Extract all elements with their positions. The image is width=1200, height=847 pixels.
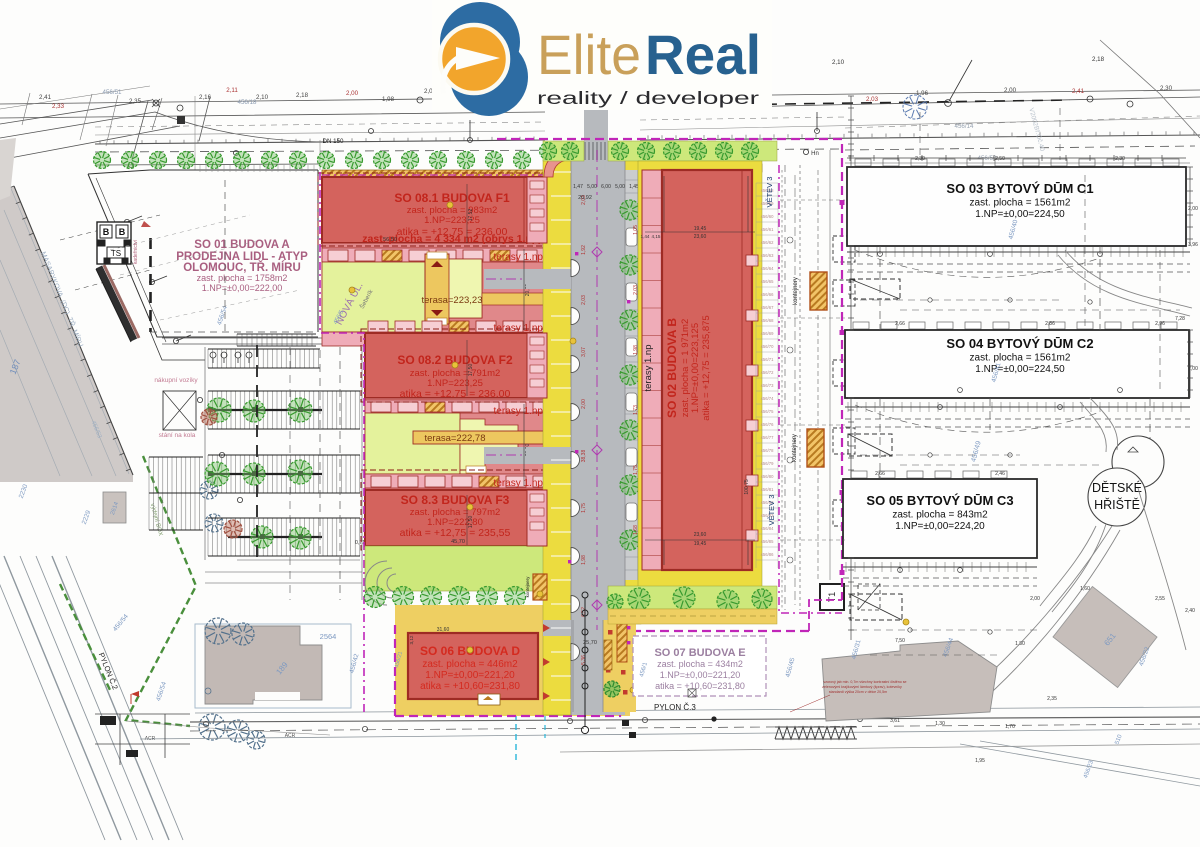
svg-text:1,60: 1,60 (1080, 586, 1090, 592)
svg-text:1,45: 1,45 (629, 184, 639, 190)
svg-text:5,00: 5,00 (615, 184, 625, 190)
svg-text:19,45: 19,45 (694, 226, 707, 232)
svg-text:5,00: 5,00 (587, 184, 597, 190)
svg-text:1.NP=±0,00=222,00: 1.NP=±0,00=222,00 (202, 283, 283, 293)
svg-text:23,60: 23,60 (694, 532, 707, 538)
svg-text:456/75: 456/75 (761, 409, 774, 414)
svg-text:456/69: 456/69 (761, 331, 774, 336)
svg-text:2,41: 2,41 (39, 94, 52, 101)
svg-text:20,92: 20,92 (578, 195, 592, 201)
svg-text:DN 150: DN 150 (323, 138, 345, 145)
svg-text:2,03: 2,03 (866, 96, 879, 103)
svg-text:3,96: 3,96 (1188, 242, 1198, 248)
svg-text:456/61: 456/61 (761, 227, 774, 232)
svg-text:1.NP=±0,00=224,50: 1.NP=±0,00=224,50 (975, 209, 1065, 220)
svg-text:Elite: Elite (537, 23, 641, 86)
svg-text:56,50: 56,50 (383, 237, 397, 243)
svg-text:456/62: 456/62 (761, 240, 774, 245)
svg-text:2,30: 2,30 (1160, 85, 1173, 92)
svg-text:456/68: 456/68 (761, 318, 774, 323)
svg-text:456/72: 456/72 (761, 370, 774, 375)
svg-text:2,40: 2,40 (1185, 608, 1195, 614)
svg-text:1,70: 1,70 (1005, 724, 1015, 730)
svg-text:456/67: 456/67 (761, 305, 774, 310)
svg-text:456/86: 456/86 (761, 552, 774, 557)
svg-text:B: B (119, 227, 126, 237)
svg-text:2,55: 2,55 (1155, 596, 1165, 602)
svg-text:25,70: 25,70 (583, 640, 597, 646)
svg-text:2,00: 2,00 (1188, 206, 1198, 212)
svg-text:17,50: 17,50 (468, 516, 474, 529)
svg-text:SO 01 BUDOVA A: SO 01 BUDOVA A (194, 239, 289, 251)
svg-text:456/79: 456/79 (761, 461, 774, 466)
svg-text:terasy 1.np: terasy 1.np (494, 406, 544, 417)
svg-text:1,44: 1,44 (641, 234, 650, 239)
svg-text:2,00: 2,00 (1030, 596, 1040, 602)
svg-text:2,18: 2,18 (1092, 56, 1105, 63)
svg-text:7,50: 7,50 (895, 638, 905, 644)
svg-text:1,96: 1,96 (916, 90, 929, 97)
svg-text:17,52: 17,52 (468, 209, 474, 222)
svg-text:1,98: 1,98 (382, 96, 395, 103)
svg-text:2,35: 2,35 (129, 98, 142, 105)
svg-text:1,47: 1,47 (573, 184, 583, 190)
svg-text:nákupní vozíky: nákupní vozíky (154, 377, 198, 384)
svg-text:2,33: 2,33 (52, 103, 65, 110)
svg-text:2,41: 2,41 (1072, 88, 1085, 95)
svg-text:terasy 1.np: terasy 1.np (494, 252, 544, 263)
svg-text:456/74: 456/74 (761, 396, 774, 401)
svg-text:456/60: 456/60 (761, 214, 774, 219)
svg-text:2,00: 2,00 (1004, 87, 1017, 94)
svg-text:PYLON Č.3: PYLON Č.3 (654, 703, 696, 712)
svg-text:terasa=222,78: terasa=222,78 (424, 433, 485, 444)
svg-text:2,35: 2,35 (1047, 696, 1057, 702)
svg-text:terasy 1.np: terasy 1.np (494, 478, 544, 489)
svg-text:Hn: Hn (811, 151, 819, 157)
svg-text:2,66: 2,66 (875, 471, 885, 477)
svg-text:atika = +12,75 = 235,875: atika = +12,75 = 235,875 (701, 315, 712, 420)
svg-text:456/78: 456/78 (761, 448, 774, 453)
svg-text:SO 04 BYTOVÝ DŪM C2: SO 04 BYTOVÝ DŪM C2 (946, 336, 1093, 351)
svg-text:VĚTEV 3: VĚTEV 3 (765, 177, 774, 208)
svg-text:456/71: 456/71 (761, 357, 774, 362)
svg-text:31,60: 31,60 (437, 627, 450, 633)
svg-text:Real: Real (645, 23, 761, 86)
svg-text:SO 03 BYTOVÝ DŪM C1: SO 03 BYTOVÝ DŪM C1 (946, 181, 1093, 196)
svg-text:reality / developer: reality / developer (537, 88, 759, 108)
svg-text:2564: 2564 (320, 632, 337, 641)
svg-text:VĚTEV 3: VĚTEV 3 (767, 495, 776, 526)
svg-text:456/65: 456/65 (761, 279, 774, 284)
svg-text:1.NP=±0,00=223,125: 1.NP=±0,00=223,125 (690, 323, 701, 413)
svg-text:17,50: 17,50 (468, 364, 474, 377)
svg-text:atika = +10,60=231,80: atika = +10,60=231,80 (420, 681, 520, 692)
svg-text:zelenovými krajíkovými lámtový: zelenovými krajíkovými lámtový (šprav), … (822, 685, 902, 689)
svg-text:DĚTSKÉ: DĚTSKÉ (1092, 480, 1142, 495)
svg-text:456/81: 456/81 (761, 487, 774, 492)
svg-text:456/14: 456/14 (955, 123, 974, 130)
svg-text:456/63: 456/63 (761, 253, 774, 258)
svg-text:2,00: 2,00 (1188, 366, 1198, 372)
svg-text:zast. plocha = 434m2: zast. plocha = 434m2 (657, 659, 743, 669)
svg-text:1,30: 1,30 (935, 721, 945, 727)
svg-text:atika = +10,60=231,80: atika = +10,60=231,80 (655, 681, 745, 691)
svg-text:456/76: 456/76 (761, 422, 774, 427)
svg-text:zast. plocha = 843m2: zast. plocha = 843m2 (892, 510, 988, 521)
svg-text:3,07: 3,07 (581, 347, 587, 357)
svg-text:terasa=223,23: terasa=223,23 (421, 295, 482, 306)
svg-text:zast. plocha = 1758m2: zast. plocha = 1758m2 (197, 273, 288, 283)
svg-text:456/77: 456/77 (761, 435, 774, 440)
svg-text:100,75: 100,75 (744, 479, 750, 495)
svg-text:456/51: 456/51 (103, 89, 122, 96)
svg-text:1.NP=±0,00=224,50: 1.NP=±0,00=224,50 (975, 364, 1065, 375)
svg-text:ACR: ACR (285, 733, 296, 739)
svg-text:SO 07 BUDOVA E: SO 07 BUDOVA E (654, 647, 745, 659)
svg-text:vzorový jab min. 0,7m všechny: vzorový jab min. 0,7m všechny kontrastní… (823, 680, 906, 684)
svg-text:4,15: 4,15 (652, 234, 661, 239)
svg-text:1,75: 1,75 (581, 503, 587, 513)
svg-text:2,10: 2,10 (256, 94, 269, 101)
svg-text:1,95: 1,95 (975, 758, 985, 764)
svg-text:6,00: 6,00 (601, 184, 611, 190)
svg-text:stání na kola: stání na kola (159, 432, 196, 439)
svg-text:456/84: 456/84 (761, 526, 774, 531)
svg-text:1,98: 1,98 (581, 555, 587, 565)
svg-text:456/64: 456/64 (761, 266, 774, 271)
svg-text:atika = +12,75 = 235,55: atika = +12,75 = 235,55 (400, 527, 511, 539)
svg-text:zast. plocha = 446m2: zast. plocha = 446m2 (422, 659, 518, 670)
svg-text:1.NP=±0,00=221,20: 1.NP=±0,00=221,20 (425, 670, 515, 681)
svg-text:zast. plocha = 1561m2: zast. plocha = 1561m2 (970, 198, 1071, 209)
svg-text:2,50: 2,50 (995, 156, 1005, 162)
svg-text:kontejnery: kontejnery (525, 576, 530, 598)
svg-text:1.NP=±0,00=224,20: 1.NP=±0,00=224,20 (895, 521, 985, 532)
svg-text:TS: TS (111, 249, 121, 258)
svg-text:SO 8.3 BUDOVA F3: SO 8.3 BUDOVA F3 (401, 493, 510, 507)
svg-text:2,11: 2,11 (226, 87, 238, 94)
svg-text:456/85: 456/85 (761, 539, 774, 544)
svg-text:HŘIŠTĚ: HŘIŠTĚ (1094, 497, 1140, 512)
svg-text:2,30: 2,30 (915, 156, 925, 162)
svg-text:5,36: 5,36 (581, 655, 587, 665)
svg-text:B: B (103, 227, 110, 237)
svg-text:terasy 1.np: terasy 1.np (643, 345, 654, 392)
svg-text:kontejnery: kontejnery (793, 277, 799, 305)
svg-text:45,70: 45,70 (451, 539, 465, 545)
svg-text:2,16: 2,16 (199, 94, 212, 101)
svg-text:2,66: 2,66 (895, 321, 905, 327)
svg-text:456/18: 456/18 (238, 99, 257, 106)
svg-text:1,92: 1,92 (581, 245, 587, 255)
svg-text:456/70: 456/70 (761, 344, 774, 349)
svg-text:2,86: 2,86 (1045, 321, 1055, 327)
svg-text:standardí výška 20cm v délce 2: standardí výška 20cm v délce 20,5m (829, 690, 887, 694)
svg-text:456/80: 456/80 (761, 474, 774, 479)
svg-text:19,45: 19,45 (694, 541, 707, 547)
svg-text:kadeřnictví: kadeřnictví (133, 239, 139, 264)
svg-text:2,00: 2,00 (581, 399, 587, 409)
svg-text:2,00: 2,00 (346, 90, 359, 97)
svg-text:SO 05 BYTOVÝ DŪM C3: SO 05 BYTOVÝ DŪM C3 (866, 493, 1013, 508)
svg-text:2,18: 2,18 (296, 92, 309, 99)
svg-text:7,28: 7,28 (1175, 316, 1185, 322)
svg-text:3,12: 3,12 (409, 635, 414, 644)
svg-text:2,46: 2,46 (995, 471, 1005, 477)
svg-text:456/66: 456/66 (761, 292, 774, 297)
svg-text:456/73: 456/73 (761, 383, 774, 388)
svg-text:2,30: 2,30 (1115, 156, 1125, 162)
svg-text:2,10: 2,10 (832, 59, 845, 66)
svg-text:1.NP=±0,00=221,20: 1.NP=±0,00=221,20 (660, 670, 741, 680)
svg-text:SO 02 BUDOVA B: SO 02 BUDOVA B (665, 318, 679, 418)
svg-text:2,03: 2,03 (581, 295, 587, 305)
svg-text:38,38: 38,38 (581, 450, 587, 463)
svg-text:23,60: 23,60 (694, 234, 707, 240)
svg-text:zast. plocha = 1561m2: zast. plocha = 1561m2 (970, 353, 1071, 364)
svg-text:3,61: 3,61 (890, 718, 900, 724)
